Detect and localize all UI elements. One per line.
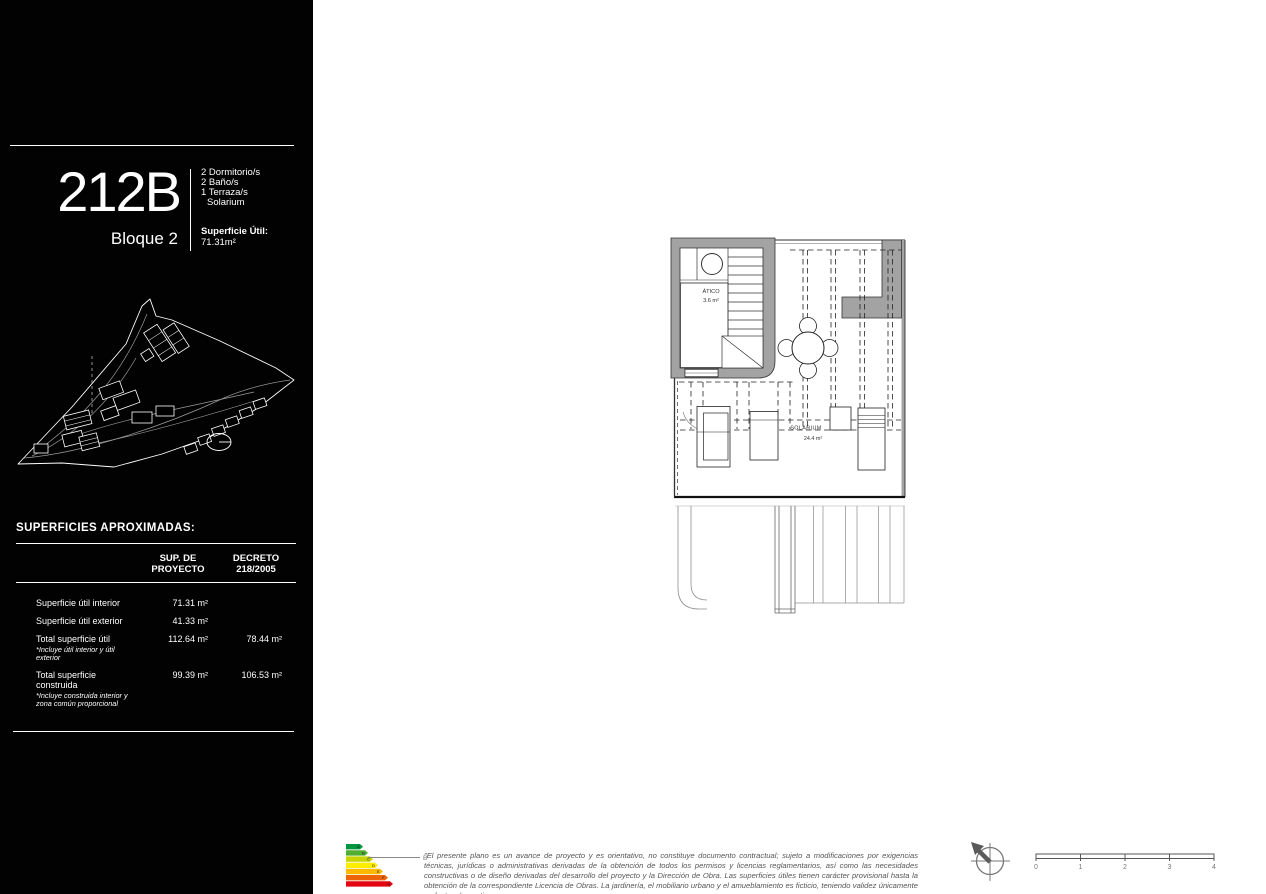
divider-line: [10, 145, 294, 146]
side-table: [830, 407, 851, 430]
column-header-decreto: DECRETO 218/2005: [216, 553, 296, 575]
column-header-proyecto: SUP. DE PROYECTO: [140, 553, 216, 575]
lower-floor-outline: [675, 506, 905, 613]
table-row: Superficie útil exterior 41.33 m²: [16, 616, 296, 626]
atico-label: ÁTICO: [702, 288, 720, 295]
svg-text:1: 1: [1079, 864, 1083, 871]
staircase: [722, 248, 763, 368]
atico-area: 3.6 m²: [703, 298, 719, 304]
svg-text:0: 0: [1034, 864, 1038, 871]
svg-text:A: A: [357, 844, 360, 849]
usable-area-label: Superficie Útil:: [201, 227, 268, 237]
table-row: Superficie útil interior 71.31 m²: [16, 598, 296, 608]
svg-text:B: B: [362, 850, 365, 855]
disclaimer-text: "El presente plano es un avance de proye…: [424, 851, 918, 894]
compass-icon: [963, 834, 1017, 888]
table-row: Total superficie construida *Incluye con…: [16, 670, 296, 708]
areas-table-header: SUP. DE PROYECTO DECRETO 218/2005: [16, 553, 296, 575]
svg-text:E: E: [377, 869, 380, 874]
divider-line: [13, 731, 294, 732]
skylight: [702, 254, 723, 275]
sun-loungers: [697, 407, 778, 468]
svg-text:G: G: [387, 881, 390, 886]
table-and-chairs: [778, 318, 838, 379]
sunbed: [858, 408, 885, 470]
usable-area-value: 71.31m²: [201, 238, 268, 248]
svg-text:3: 3: [1168, 864, 1172, 871]
north-arrow: [971, 842, 990, 862]
floor-plan-drawing: ÁTICO 3.6 m²: [650, 225, 920, 630]
divider-line: [16, 582, 296, 583]
unit-header: 212B Bloque 2 2 Dormitorio/s 2 Baño/s 1 …: [22, 163, 292, 253]
svg-text:D: D: [372, 863, 375, 868]
svg-text:2: 2: [1123, 864, 1127, 871]
plan-sheet: 212B Bloque 2 2 Dormitorio/s 2 Baño/s 1 …: [0, 0, 1266, 894]
table-row: Total superficie útil *Incluye útil inte…: [16, 634, 296, 662]
site-boundary: [18, 299, 294, 467]
solarium-area: 24.4 m²: [804, 436, 822, 442]
solarium-label: SOLARIUM: [790, 426, 821, 432]
energy-bars: [346, 844, 393, 887]
sidebar: 212B Bloque 2 2 Dormitorio/s 2 Baño/s 1 …: [0, 0, 313, 894]
divider-line: [16, 543, 296, 544]
areas-table-title: SUPERFICIES APROXIMADAS:: [16, 522, 296, 534]
feature-solarium: Solarium: [201, 198, 268, 208]
areas-table: SUPERFICIES APROXIMADAS: SUP. DE PROYECT…: [16, 522, 296, 716]
scale-bar: 0 1 2 3 4: [1030, 847, 1222, 875]
svg-text:4: 4: [1212, 864, 1216, 871]
unit-block: Bloque 2: [22, 229, 180, 249]
unit-id: 212B: [22, 163, 180, 221]
site-plan-illustration: [14, 286, 300, 482]
